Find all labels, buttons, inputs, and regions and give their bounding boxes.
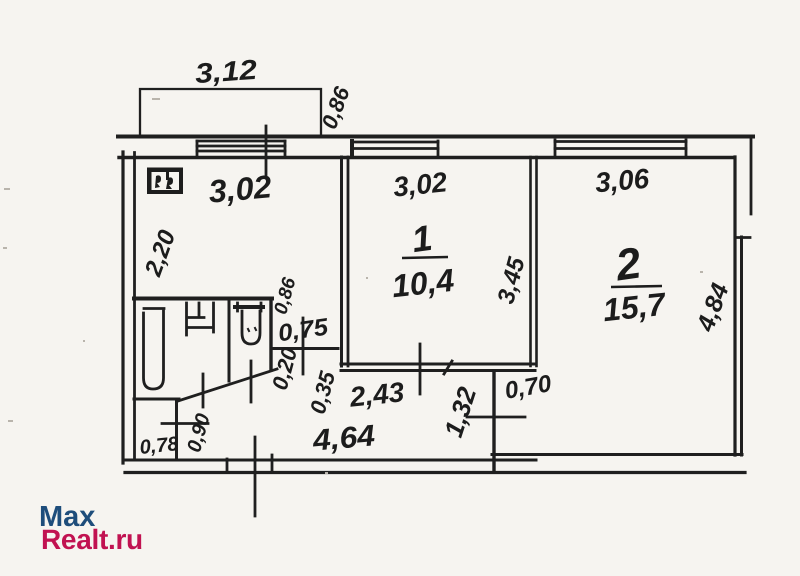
svg-text:3,02: 3,02 <box>207 168 273 209</box>
svg-text:3,06: 3,06 <box>594 163 651 199</box>
svg-text:3,02: 3,02 <box>392 166 449 203</box>
svg-text:4,64: 4,64 <box>311 419 377 457</box>
svg-text:3,12: 3,12 <box>194 54 258 89</box>
svg-text:0,78: 0,78 <box>139 433 181 459</box>
svg-text:Realt.ru: Realt.ru <box>41 524 143 555</box>
svg-text:2,43: 2,43 <box>347 376 406 413</box>
svg-text:15,7: 15,7 <box>601 286 669 329</box>
svg-text:10,4: 10,4 <box>390 262 456 304</box>
